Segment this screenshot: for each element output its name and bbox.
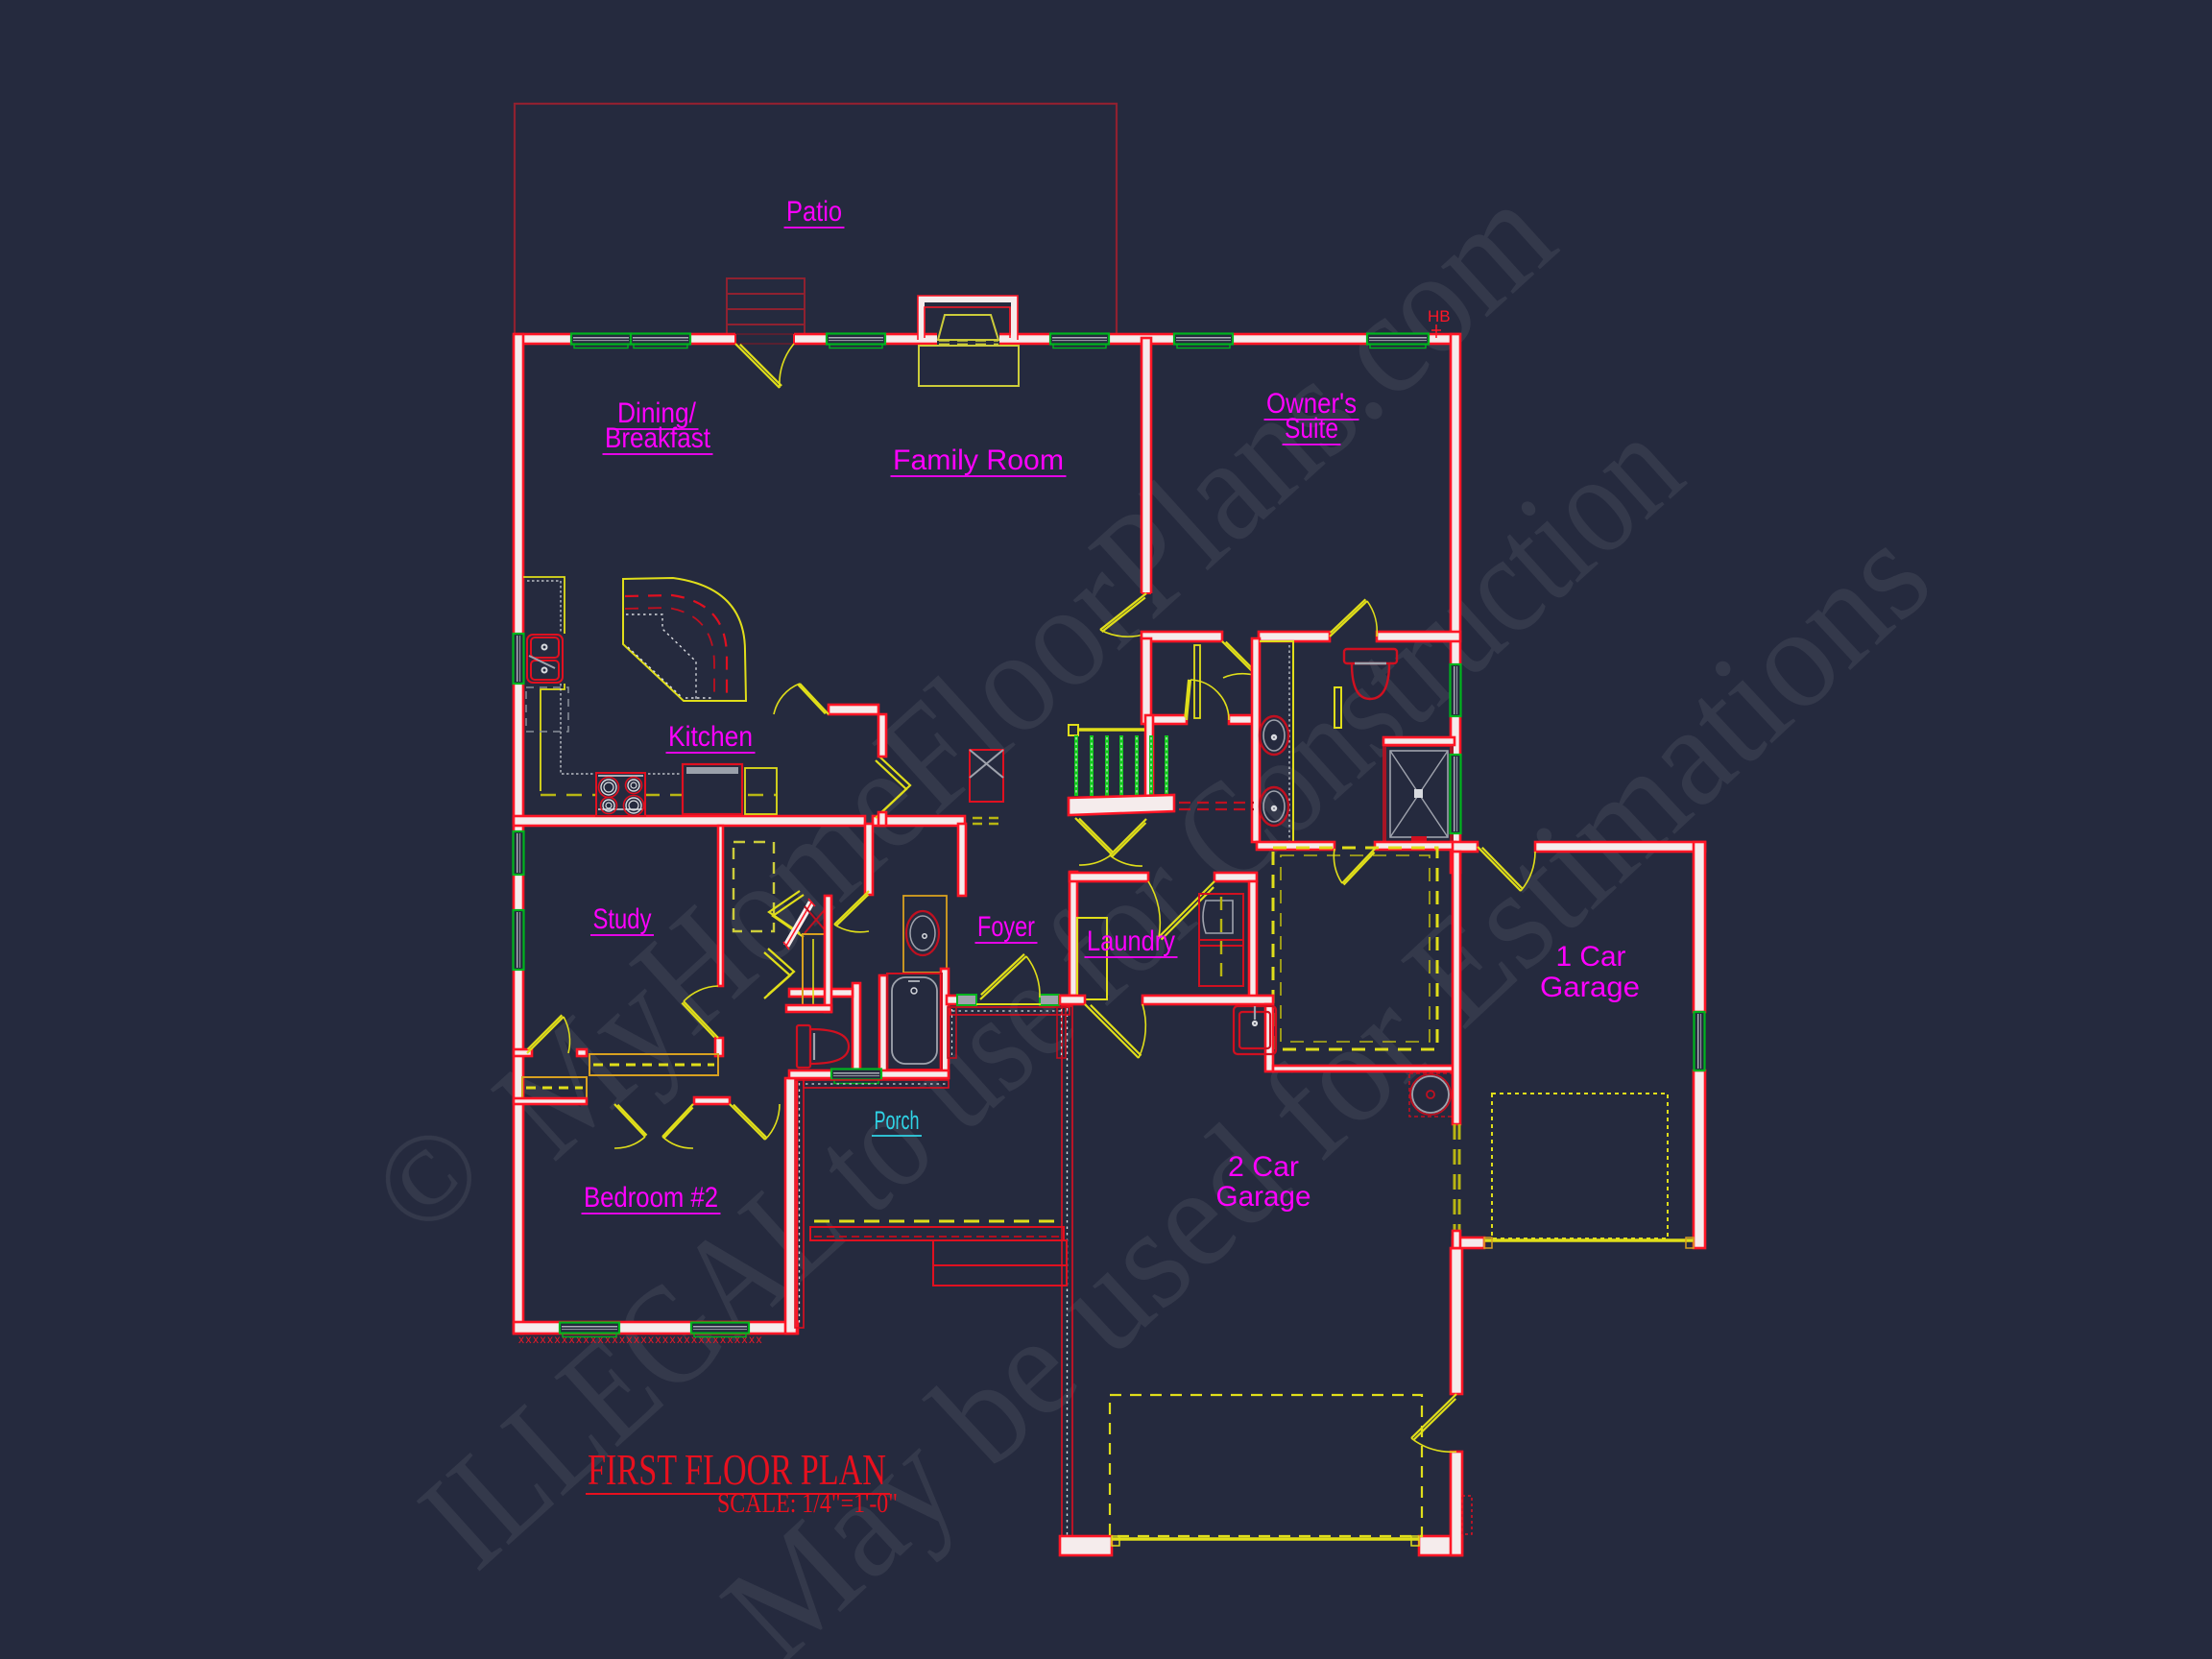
svg-text:SCALE: 1/4"=1'-0": SCALE: 1/4"=1'-0" xyxy=(717,1488,898,1519)
svg-text:Suite: Suite xyxy=(1285,413,1338,445)
svg-text:Porch: Porch xyxy=(875,1106,920,1135)
svg-text:Garage: Garage xyxy=(1216,1181,1311,1213)
svg-text:xxxxxxxxxxxxxxxxxxxxxxxxxxxxxx: xxxxxxxxxxxxxxxxxxxxxxxxxxxxxxxxxx xyxy=(518,1333,763,1346)
svg-text:2 Car: 2 Car xyxy=(1228,1151,1299,1183)
svg-text:Foyer: Foyer xyxy=(977,911,1035,943)
svg-text:Study: Study xyxy=(593,903,652,935)
svg-text:Breakfast: Breakfast xyxy=(605,422,711,454)
svg-text:1 Car: 1 Car xyxy=(1556,941,1626,973)
svg-text:Family Room: Family Room xyxy=(893,445,1064,476)
svg-text:Kitchen: Kitchen xyxy=(668,721,753,753)
svg-text:FIRST FLOOR PLAN: FIRST FLOOR PLAN xyxy=(588,1445,886,1494)
svg-text:Garage: Garage xyxy=(1540,972,1640,1003)
svg-text:Laundry: Laundry xyxy=(1087,926,1175,957)
svg-text:HB: HB xyxy=(1428,307,1451,325)
svg-text:Bedroom #2: Bedroom #2 xyxy=(584,1182,718,1214)
svg-text:Patio: Patio xyxy=(786,196,842,228)
